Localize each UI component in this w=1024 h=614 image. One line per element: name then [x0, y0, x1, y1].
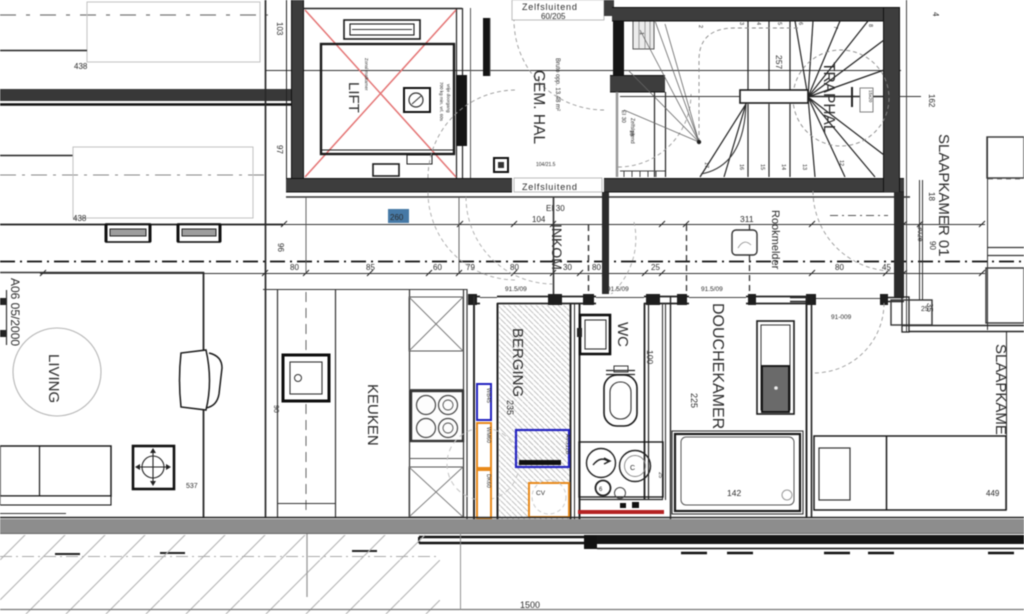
svg-text:C: C [630, 465, 635, 472]
svg-text:15: 15 [759, 164, 765, 170]
svg-text:2: 2 [697, 25, 703, 28]
svg-text:Rookmelder: Rookmelder [769, 210, 781, 270]
svg-text:80: 80 [592, 263, 601, 272]
svg-text:WM60: WM60 [485, 427, 491, 443]
svg-text:80: 80 [290, 263, 299, 272]
svg-text:WC: WC [614, 322, 631, 347]
svg-text:Zelfsluitend: Zelfsluitend [522, 182, 578, 192]
svg-text:257: 257 [774, 55, 784, 69]
svg-text:1500: 1500 [520, 600, 540, 610]
svg-text:60/205: 60/205 [541, 12, 566, 21]
svg-text:104/21.5: 104/21.5 [536, 162, 556, 168]
svg-text:90: 90 [272, 405, 279, 413]
svg-text:537: 537 [186, 483, 198, 490]
svg-text:Zonal matkamer: Zonal matkamer [364, 58, 369, 91]
svg-text:AVS12B: AVS12B [564, 434, 570, 455]
svg-text:85: 85 [366, 263, 375, 272]
svg-text:700 kg min. vrl. 60s: 700 kg min. vrl. 60s [439, 82, 444, 122]
svg-text:17: 17 [703, 162, 709, 168]
svg-text:14: 14 [780, 164, 786, 170]
svg-text:25: 25 [657, 472, 663, 478]
svg-text:142: 142 [727, 488, 741, 498]
svg-text:80: 80 [835, 263, 844, 272]
svg-text:91-009: 91-009 [831, 314, 852, 321]
svg-text:97: 97 [275, 145, 284, 154]
svg-text:8: 8 [867, 24, 873, 27]
svg-text:LIVING: LIVING [45, 354, 62, 403]
svg-text:INKOM: INKOM [549, 224, 565, 270]
svg-text:13: 13 [801, 164, 807, 170]
svg-text:311: 311 [740, 214, 754, 224]
svg-text:18: 18 [927, 192, 936, 201]
svg-text:1: 1 [638, 32, 644, 35]
svg-text:vrije doorgang: vrije doorgang [446, 84, 451, 113]
svg-text:12: 12 [838, 160, 844, 166]
svg-text:16: 16 [738, 164, 744, 170]
svg-text:DK60: DK60 [485, 474, 491, 488]
svg-text:EI 30: EI 30 [546, 204, 565, 213]
svg-text:18: 18 [628, 130, 634, 136]
svg-text:91.5/09: 91.5/09 [701, 286, 723, 293]
svg-text:90: 90 [928, 241, 937, 250]
svg-text:WB45: WB45 [485, 388, 491, 403]
svg-text:449: 449 [986, 489, 1000, 498]
svg-text:15x20: 15x20 [868, 90, 873, 103]
svg-text:BERGING: BERGING [509, 328, 526, 397]
svg-text:7: 7 [832, 26, 838, 29]
svg-text:438: 438 [73, 214, 87, 223]
svg-text:235: 235 [505, 400, 515, 415]
svg-text:438: 438 [74, 62, 88, 71]
svg-text:EI 30: EI 30 [620, 110, 626, 123]
svg-text:4: 4 [755, 22, 761, 25]
svg-text:162: 162 [927, 94, 936, 108]
svg-text:TRAPHAL: TRAPHAL [820, 62, 837, 134]
svg-text:GEM. HAL: GEM. HAL [530, 70, 547, 144]
svg-text:SLAAPKAMER 01: SLAAPKAMER 01 [935, 134, 952, 257]
svg-text:CV: CV [536, 490, 546, 497]
svg-text:KEUKEN: KEUKEN [364, 384, 381, 446]
svg-text:96: 96 [276, 243, 285, 252]
svg-text:60: 60 [433, 263, 442, 272]
svg-text:Zelfsluitend: Zelfsluitend [522, 2, 578, 12]
svg-text:79: 79 [466, 263, 475, 272]
svg-text:103: 103 [275, 22, 284, 36]
svg-text:100: 100 [645, 350, 655, 364]
svg-text:5: 5 [776, 22, 782, 25]
svg-text:A06 05/2000: A06 05/2000 [8, 278, 22, 346]
svg-text:225: 225 [689, 393, 699, 408]
svg-text:80: 80 [510, 263, 519, 272]
svg-text:3: 3 [738, 22, 744, 25]
svg-text:25: 25 [651, 263, 660, 272]
svg-text:Bruto opp. 13.48 m²: Bruto opp. 13.48 m² [554, 58, 560, 111]
svg-text:DOUCHEKAMER: DOUCHEKAMER [709, 303, 726, 429]
svg-text:104: 104 [532, 215, 546, 224]
svg-text:25: 25 [921, 306, 929, 313]
svg-text:LIFT: LIFT [345, 82, 362, 113]
svg-text:6: 6 [797, 22, 803, 25]
svg-text:260: 260 [390, 213, 404, 222]
svg-text:302e: 302e [916, 226, 923, 242]
svg-text:4: 4 [931, 12, 940, 17]
svg-text:91.5/09: 91.5/09 [607, 286, 629, 293]
svg-text:91.5/09: 91.5/09 [505, 286, 527, 293]
